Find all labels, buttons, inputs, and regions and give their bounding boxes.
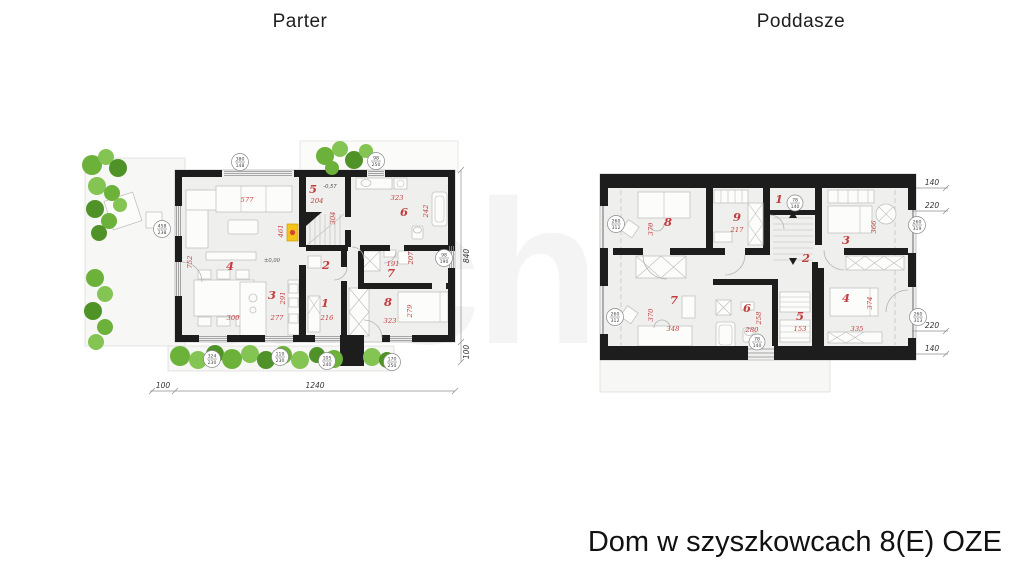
dim-label: 258 bbox=[755, 311, 763, 326]
poddasze-side-dims: 140 220 220 140 bbox=[912, 178, 949, 357]
dim-label: 217 bbox=[730, 226, 745, 234]
marker-label: 250 bbox=[388, 363, 397, 369]
marker-label: 312 bbox=[612, 225, 621, 231]
marker-label: 170 bbox=[388, 357, 397, 363]
room-label: 1 bbox=[321, 296, 329, 310]
dim-label: 461 bbox=[277, 225, 285, 239]
marker-label: 140 bbox=[753, 343, 762, 349]
level-label: ±0,00 bbox=[264, 258, 281, 264]
dim-label: 277 bbox=[270, 314, 285, 322]
dim-label: 220 bbox=[925, 201, 940, 210]
dim-label: 140 bbox=[925, 178, 940, 187]
marker-label: 78 bbox=[754, 337, 760, 343]
room-label: 6 bbox=[743, 301, 751, 315]
marker-label: 230 bbox=[208, 360, 217, 366]
dim-label: 304 bbox=[329, 212, 337, 225]
marker-label: 190 bbox=[440, 259, 449, 265]
dim-label: 280 bbox=[745, 326, 760, 334]
marker-label: 260 bbox=[611, 312, 620, 318]
room-label: 3 bbox=[268, 288, 276, 302]
marker-label: 98 bbox=[373, 156, 379, 162]
floor-plan-poddasze: 8 9 1 2 3 7 6 5 4 370 217 366 370 348 25… bbox=[575, 138, 960, 410]
room-label: 8 bbox=[664, 215, 672, 229]
marker-label: 78 bbox=[792, 198, 798, 204]
room-label: 8 bbox=[384, 295, 392, 309]
dim-label: 204 bbox=[310, 197, 324, 205]
floor-plan-parter: 5 6 4 2 7 3 1 8 577 204 323 752 304 242 … bbox=[80, 130, 475, 415]
room-label: 6 bbox=[400, 205, 408, 219]
marker-label: 250 bbox=[372, 162, 381, 168]
dim-label: 370 bbox=[647, 308, 655, 322]
dim-label: 140 bbox=[925, 344, 940, 353]
room-label: 4 bbox=[842, 291, 850, 305]
marker-label: 380 bbox=[236, 157, 245, 163]
dim-label: 370 bbox=[647, 222, 655, 236]
marker-label: 313 bbox=[914, 318, 923, 324]
level-label: -0,57 bbox=[323, 184, 337, 190]
marker-label: 260 bbox=[612, 219, 621, 225]
dim-label: 220 bbox=[925, 321, 940, 330]
dim-label: 840 bbox=[462, 249, 471, 264]
marker-label: 148 bbox=[236, 163, 245, 169]
dim-label: 323 bbox=[384, 317, 397, 325]
room-label: 5 bbox=[309, 182, 317, 196]
room-label: 4 bbox=[226, 259, 234, 273]
marker-label: 238 bbox=[158, 230, 167, 236]
floor-plan-sheet: { "header": { "parter": "Parter", "podda… bbox=[0, 0, 1024, 576]
dim-label: 366 bbox=[870, 220, 878, 234]
dim-label: 577 bbox=[241, 196, 255, 204]
marker-label: 140 bbox=[791, 204, 800, 210]
dim-label: 323 bbox=[391, 194, 404, 202]
dim-label: 100 bbox=[462, 345, 471, 360]
dim-label: 335 bbox=[851, 325, 864, 333]
marker-label: 458 bbox=[158, 224, 167, 230]
room-label: 2 bbox=[801, 251, 810, 265]
fireplace-icon bbox=[287, 224, 298, 241]
project-title: Dom w szyszkowcach 8(E) OZE bbox=[588, 526, 1002, 559]
marker-label: 260 bbox=[913, 220, 922, 226]
dim-label: 242 bbox=[422, 205, 430, 219]
dim-label: 300 bbox=[227, 314, 241, 322]
marker-label: 324 bbox=[208, 354, 217, 360]
poddasze-balcony-outline bbox=[600, 360, 830, 392]
dim-label: 374 bbox=[866, 297, 874, 310]
dim-label: 752 bbox=[186, 256, 194, 269]
dim-label: 207 bbox=[407, 251, 415, 266]
marker-label: 319 bbox=[913, 226, 922, 232]
marker-label: 260 bbox=[914, 312, 923, 318]
dim-label: 100 bbox=[156, 381, 171, 390]
room-label: 1 bbox=[775, 192, 783, 206]
marker-label: 240 bbox=[323, 362, 332, 368]
room-label: 9 bbox=[733, 210, 741, 224]
dim-label: 279 bbox=[406, 304, 414, 319]
dim-label: 216 bbox=[320, 314, 335, 322]
plan-title-poddasze: Poddasze bbox=[757, 11, 846, 33]
dim-label: 1240 bbox=[305, 381, 324, 390]
room-label: 5 bbox=[796, 309, 804, 323]
plan-title-parter: Parter bbox=[273, 11, 328, 33]
dim-label: 348 bbox=[667, 325, 681, 333]
room-label: 7 bbox=[670, 293, 678, 307]
room-label: 2 bbox=[321, 258, 330, 272]
dim-label: 191 bbox=[387, 260, 400, 268]
dim-label: 153 bbox=[794, 325, 807, 333]
room-label: 3 bbox=[842, 233, 850, 247]
dim-label: 291 bbox=[279, 292, 287, 306]
room-label: 7 bbox=[387, 266, 395, 280]
marker-label: 98 bbox=[441, 253, 447, 259]
marker-label: 105 bbox=[323, 356, 332, 362]
marker-label: 230 bbox=[276, 358, 285, 364]
marker-label: 312 bbox=[611, 318, 620, 324]
marker-label: 110 bbox=[276, 352, 285, 358]
